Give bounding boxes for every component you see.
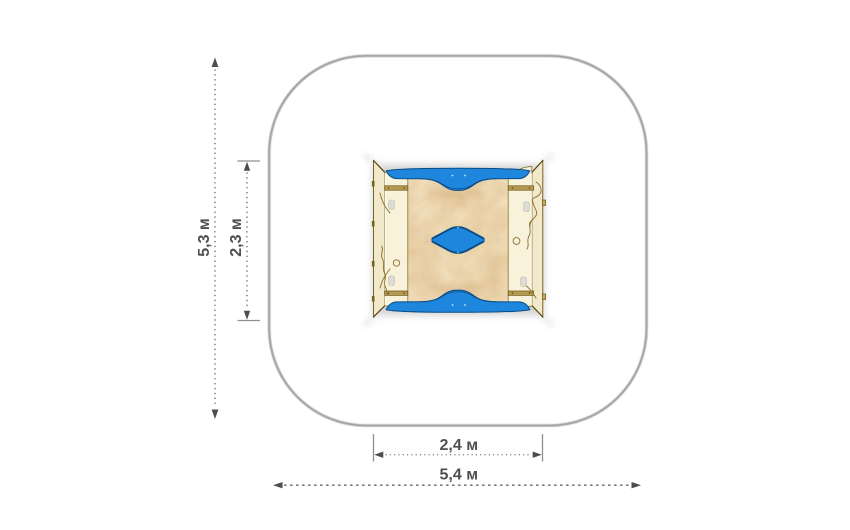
svg-text:2,4 м: 2,4 м: [440, 437, 479, 454]
svg-text:2,3 м: 2,3 м: [228, 218, 245, 257]
svg-text:5,3 м: 5,3 м: [196, 218, 213, 257]
svg-text:5,4 м: 5,4 м: [440, 467, 479, 484]
